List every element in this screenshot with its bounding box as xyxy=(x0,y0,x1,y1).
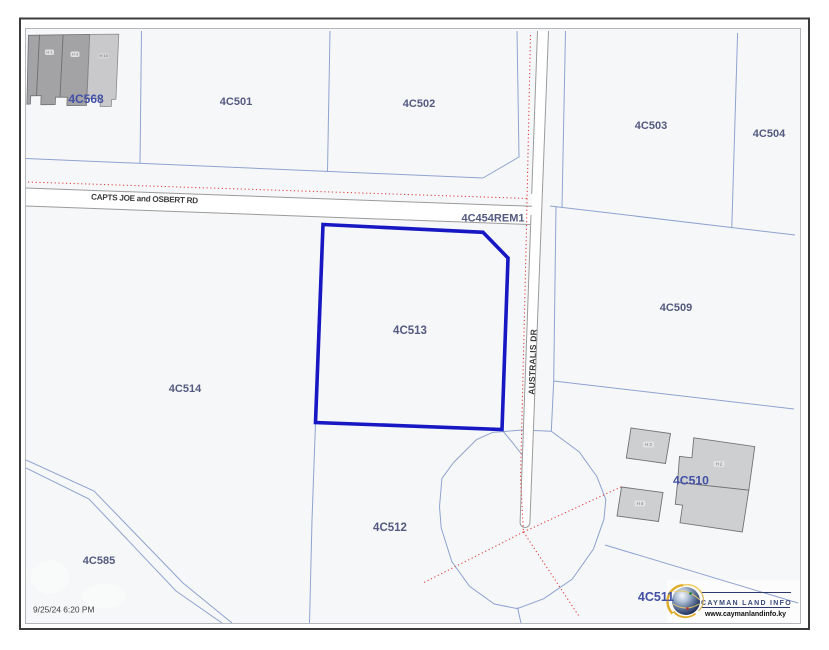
svg-text:4C585: 4C585 xyxy=(83,555,115,567)
svg-text:H 1: H 1 xyxy=(46,50,53,55)
svg-text:4C501: 4C501 xyxy=(220,96,252,108)
svg-text:H 2: H 2 xyxy=(716,462,723,467)
svg-text:4C514: 4C514 xyxy=(169,383,202,395)
svg-text:4C502: 4C502 xyxy=(403,98,435,110)
svg-text:4C512: 4C512 xyxy=(373,522,407,534)
svg-text:CAYMAN LAND INFO: CAYMAN LAND INFO xyxy=(701,600,792,607)
svg-text:9/25/24 6:20 PM: 9/25/24 6:20 PM xyxy=(33,605,94,615)
svg-text:4C513: 4C513 xyxy=(393,325,427,337)
svg-text:4C504: 4C504 xyxy=(753,128,786,140)
svg-text:H 3: H 3 xyxy=(645,442,652,447)
svg-text:4C568: 4C568 xyxy=(68,92,104,106)
svg-text:4C509: 4C509 xyxy=(660,302,692,314)
svg-text:H 10: H 10 xyxy=(99,53,108,58)
svg-text:4C511: 4C511 xyxy=(638,590,674,604)
svg-text:H 3: H 3 xyxy=(72,52,79,57)
svg-text:4C510: 4C510 xyxy=(673,474,709,488)
svg-text:H 4: H 4 xyxy=(637,501,644,506)
svg-text:www.caymanlandinfo.ky: www.caymanlandinfo.ky xyxy=(704,611,786,618)
svg-text:4C503: 4C503 xyxy=(635,120,667,132)
svg-text:4C454REM1: 4C454REM1 xyxy=(462,213,525,225)
